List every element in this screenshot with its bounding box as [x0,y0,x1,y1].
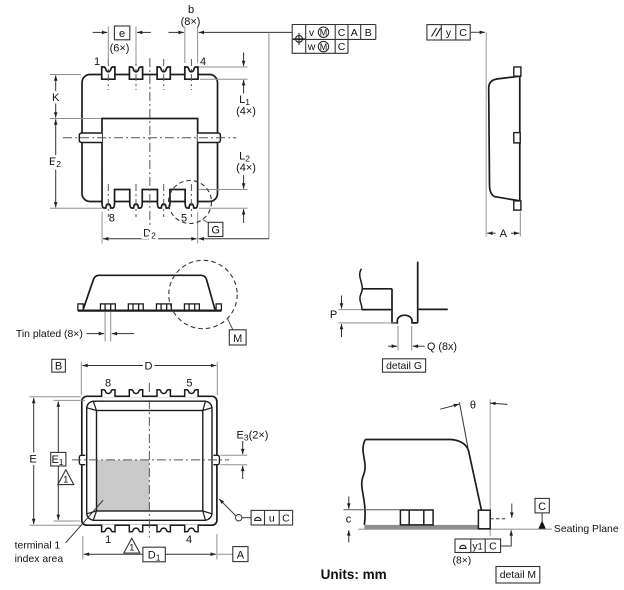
svg-text:E3(2×): E3(2×) [237,429,269,442]
svg-text:e: e [119,28,125,40]
svg-text:b: b [188,4,194,16]
svg-text:y1: y1 [472,541,482,553]
svg-text:G: G [211,225,220,237]
svg-text:c: c [346,514,352,526]
svg-text:(4×): (4×) [236,106,256,118]
svg-text:(8×): (8×) [181,16,201,28]
svg-text:B: B [365,27,372,39]
svg-text:terminal 1: terminal 1 [15,541,61,552]
svg-text:C: C [282,513,290,525]
svg-text:P: P [330,309,337,321]
svg-text:8: 8 [105,378,111,390]
svg-text:A: A [351,27,358,39]
svg-text:M: M [320,27,328,37]
svg-text:1: 1 [105,534,111,546]
svg-text:B: B [55,361,62,373]
svg-text:θ: θ [470,400,476,412]
svg-text:C: C [459,27,467,39]
svg-text:Seating Plane: Seating Plane [554,524,619,535]
svg-text:detail G: detail G [386,361,422,372]
svg-text:C: C [338,27,346,39]
svg-text:Q (8x): Q (8x) [427,341,457,353]
svg-text:D2: D2 [143,227,156,240]
svg-text:K: K [52,92,60,104]
svg-text:4: 4 [186,534,192,546]
svg-text:detail M: detail M [500,570,536,581]
svg-text:y: y [446,27,452,39]
svg-text:Units: mm: Units: mm [321,567,387,582]
svg-text:v: v [309,27,315,39]
svg-text:(4×): (4×) [236,162,256,174]
svg-text:(6×): (6×) [110,43,130,55]
svg-text:C: C [338,41,346,53]
svg-text:u: u [269,513,275,525]
svg-text:C: C [538,501,546,513]
svg-text:C: C [489,541,497,553]
svg-text:5: 5 [186,378,192,390]
svg-text:index area: index area [15,554,64,565]
svg-text:(8×): (8×) [453,555,472,566]
svg-text:M: M [320,42,328,52]
svg-text:4: 4 [200,56,206,68]
svg-text:w: w [307,41,316,53]
svg-text:8: 8 [109,213,115,225]
svg-text:1: 1 [94,56,100,68]
svg-text:A: A [237,550,245,562]
svg-text:D: D [145,360,153,372]
svg-text:E2: E2 [49,156,61,169]
svg-text:1: 1 [129,543,134,554]
svg-text:A: A [500,228,508,240]
svg-text:M: M [233,333,242,345]
svg-text:Tin plated (8×): Tin plated (8×) [16,329,83,340]
svg-text:E: E [29,454,36,466]
svg-text:1: 1 [63,474,68,485]
